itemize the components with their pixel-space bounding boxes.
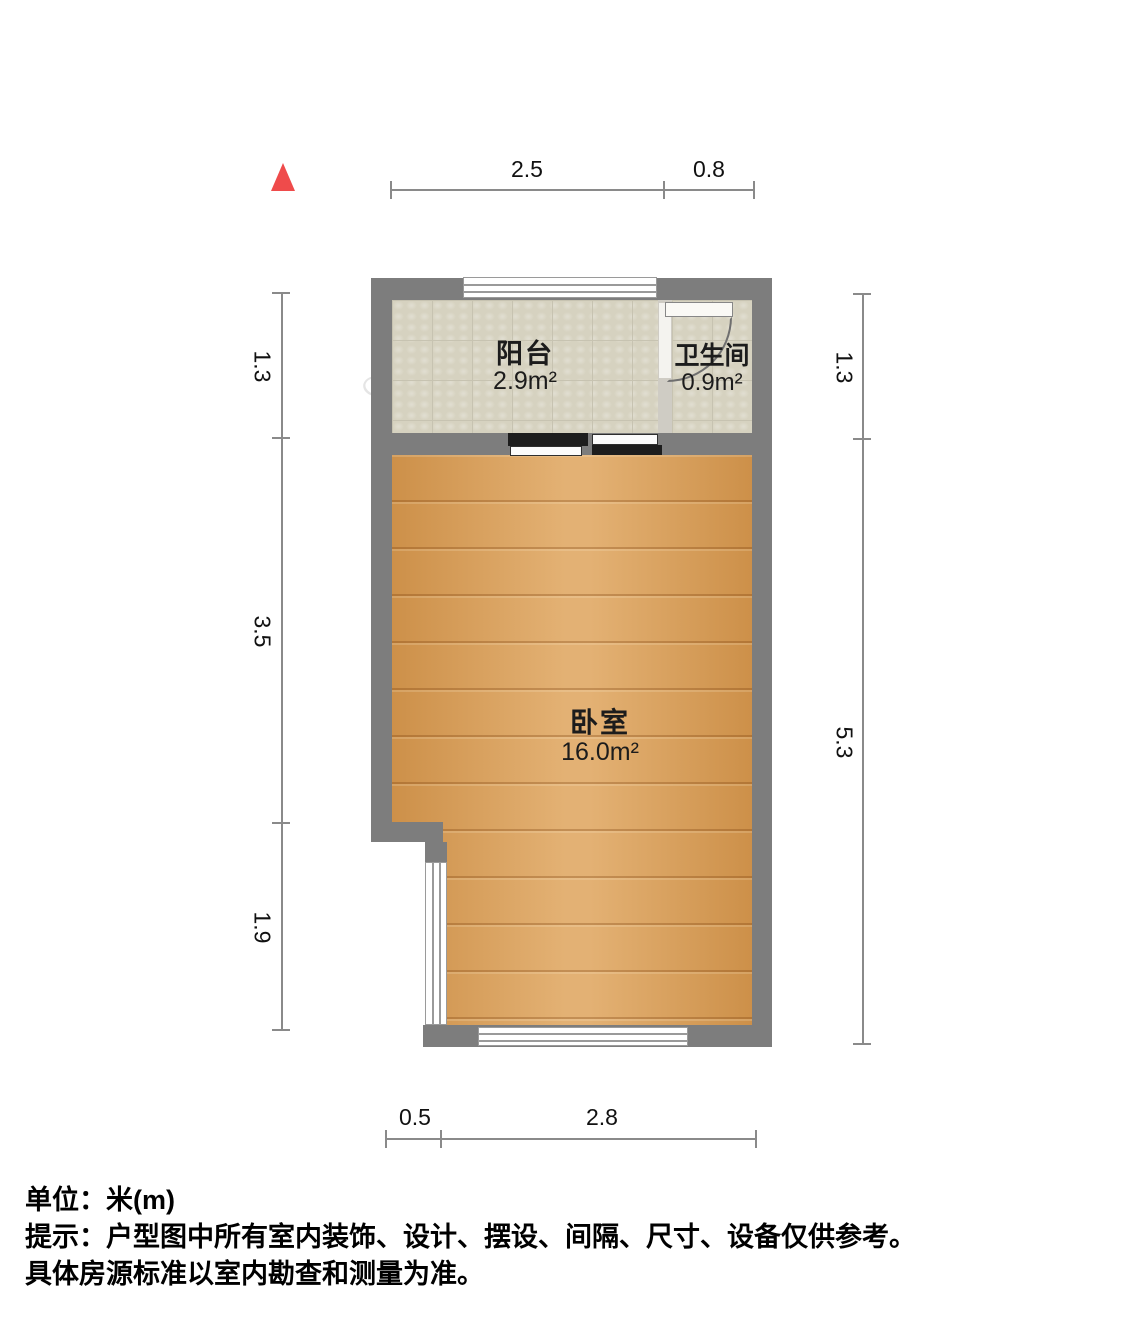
dimension-tick — [663, 181, 665, 199]
floorplan-canvas: Q房网 Q房网 正顺好房 正顺好房 Q房网 阳台 2.9m² 卫生间 0.9m²… — [0, 0, 1144, 1326]
dimension-tick — [272, 822, 290, 824]
dimension-tick — [753, 181, 755, 199]
sliding-door-frame — [592, 445, 662, 455]
dimension-tick — [440, 1130, 442, 1148]
bathroom-label: 卫生间 — [660, 336, 764, 372]
dimension-tick — [385, 1130, 387, 1148]
dimension-label-left-2: 3.5 — [249, 582, 276, 682]
dimension-label-top-2: 0.8 — [659, 156, 759, 183]
dimension-label-left-1: 1.3 — [249, 317, 276, 417]
sliding-door-frame — [508, 433, 588, 446]
bathroom-door-leaf — [665, 302, 733, 317]
dimension-tick — [853, 438, 871, 440]
bathroom-area-label: 0.9m² — [660, 369, 764, 397]
dimension-label-left-3: 1.9 — [249, 878, 276, 978]
dimension-tick — [853, 1043, 871, 1045]
dimension-tick — [272, 1029, 290, 1031]
window-mullion — [464, 284, 656, 286]
window-mullion — [479, 1033, 687, 1035]
balcony-area-label: 2.9m² — [402, 367, 648, 396]
dimension-tick — [272, 437, 290, 439]
footer-tip-line2: 具体房源标准以室内勘查和测量为准。 — [25, 1256, 1125, 1293]
window-left — [425, 862, 447, 1025]
dimension-label-top-1: 2.5 — [477, 156, 577, 183]
sliding-door-panel — [592, 434, 658, 445]
footer-tip-line: 提示：户型图中所有室内装饰、设计、摆设、间隔、尺寸、设备仅供参考。 — [25, 1219, 1125, 1256]
window-top — [463, 277, 657, 298]
sliding-door-panel — [510, 446, 582, 456]
dimension-tick — [272, 292, 290, 294]
dimension-label-bottom-1: 0.5 — [365, 1104, 465, 1131]
wall-left — [371, 278, 392, 842]
dimension-label-bottom-2: 2.8 — [552, 1104, 652, 1131]
window-mullion — [464, 291, 656, 293]
window-bottom — [478, 1027, 688, 1046]
window-mullion — [439, 863, 441, 1024]
balcony-label: 阳台 — [402, 332, 648, 371]
window-mullion — [432, 863, 434, 1024]
dimension-label-right-1: 1.3 — [831, 318, 858, 418]
window-mullion — [479, 1040, 687, 1042]
north-arrow-icon — [271, 163, 295, 191]
dimension-tick — [755, 1130, 757, 1148]
wall-stub — [425, 842, 447, 864]
dimension-line-top — [391, 189, 755, 191]
dimension-line-right — [862, 294, 864, 1045]
dimension-line-left — [281, 293, 283, 1030]
dimension-tick — [390, 181, 392, 199]
bedroom-area-label: 16.0m² — [480, 738, 720, 767]
wall-step — [371, 822, 443, 842]
dimension-tick — [853, 293, 871, 295]
footer-unit-line: 单位：米(m) — [25, 1182, 1125, 1219]
footer-notes: 单位：米(m) 提示：户型图中所有室内装饰、设计、摆设、间隔、尺寸、设备仅供参考… — [25, 1182, 1125, 1293]
dimension-label-right-2: 5.3 — [831, 693, 858, 793]
bedroom-label: 卧室 — [480, 701, 720, 741]
